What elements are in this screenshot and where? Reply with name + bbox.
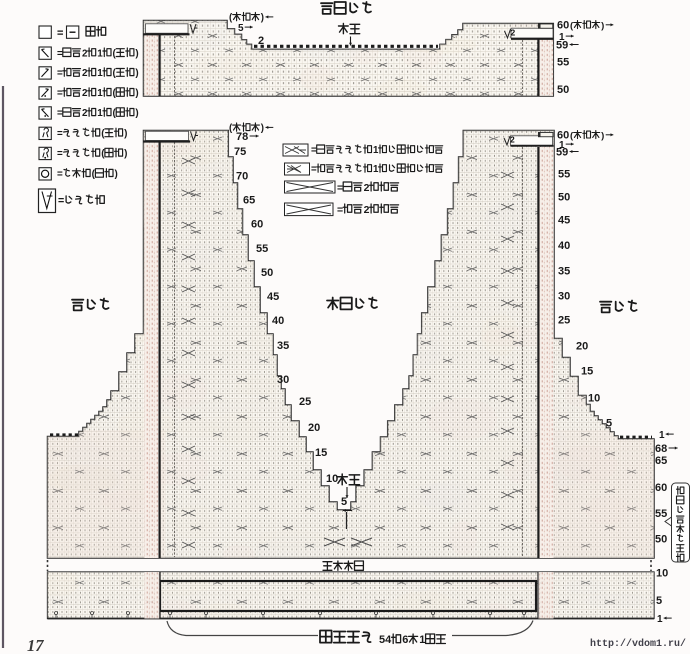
svg-text:=: =: [337, 182, 343, 194]
svg-text:): ): [124, 129, 127, 140]
svg-text:20: 20: [308, 422, 320, 434]
svg-text:1: 1: [97, 88, 103, 99]
svg-text:5: 5: [238, 23, 244, 34]
svg-text:2: 2: [364, 182, 370, 194]
svg-text:50: 50: [261, 267, 273, 279]
svg-text:=: =: [57, 169, 63, 180]
svg-text:=: =: [311, 145, 317, 156]
svg-text:): ): [601, 130, 604, 141]
svg-text:5: 5: [341, 496, 347, 508]
svg-text:40: 40: [272, 315, 284, 327]
svg-text:60: 60: [251, 219, 263, 231]
svg-text:68: 68: [655, 443, 667, 455]
svg-text:2: 2: [82, 88, 88, 99]
svg-text:http://vdom1.ru/: http://vdom1.ru/: [590, 638, 686, 650]
svg-text:=: =: [57, 48, 63, 59]
svg-text:): ): [601, 20, 604, 31]
svg-text:1: 1: [419, 634, 425, 646]
svg-text:1: 1: [373, 145, 379, 156]
svg-text:1: 1: [97, 108, 103, 119]
svg-text:15: 15: [581, 366, 593, 378]
svg-text:55: 55: [655, 508, 667, 520]
svg-text:2: 2: [82, 108, 88, 119]
svg-text:17: 17: [27, 636, 44, 654]
svg-text:50: 50: [558, 192, 570, 204]
svg-text:2: 2: [511, 28, 516, 38]
svg-text:=: =: [58, 195, 64, 207]
svg-text:1: 1: [97, 68, 103, 79]
svg-text:25: 25: [299, 396, 311, 408]
svg-text:1: 1: [97, 48, 103, 59]
svg-text:45: 45: [267, 291, 279, 303]
svg-text:70: 70: [236, 171, 248, 183]
svg-text:10: 10: [588, 393, 600, 405]
svg-text:=: =: [311, 164, 317, 175]
svg-text:): ): [115, 169, 118, 180]
svg-text:35: 35: [558, 266, 570, 278]
svg-text:10: 10: [656, 568, 668, 580]
svg-text:): ): [261, 123, 264, 134]
svg-text:=: =: [57, 149, 63, 160]
svg-text:5: 5: [656, 595, 662, 607]
svg-text:=: =: [57, 108, 63, 119]
svg-text:78: 78: [236, 131, 248, 143]
svg-text:10: 10: [326, 473, 338, 485]
svg-text:2: 2: [82, 68, 88, 79]
svg-text:=: =: [57, 68, 63, 79]
svg-text:1: 1: [659, 430, 665, 441]
svg-text:): ): [135, 68, 138, 79]
svg-text:59: 59: [556, 40, 568, 52]
svg-text:50: 50: [655, 534, 667, 546]
svg-text:=: =: [57, 129, 63, 140]
svg-text:60: 60: [655, 482, 667, 494]
svg-text:15: 15: [315, 447, 327, 459]
svg-text:5: 5: [606, 418, 612, 430]
svg-text:=: =: [57, 28, 63, 40]
svg-text:55: 55: [256, 243, 268, 255]
svg-text:35: 35: [277, 340, 289, 352]
svg-text:): ): [135, 48, 138, 59]
svg-text:65: 65: [243, 195, 255, 207]
svg-text:): ): [135, 108, 138, 119]
svg-text:2: 2: [258, 35, 264, 47]
svg-text:75: 75: [234, 146, 246, 158]
svg-text:60: 60: [557, 20, 569, 32]
svg-text:65: 65: [655, 455, 667, 467]
svg-text:30: 30: [277, 374, 289, 386]
svg-text:40: 40: [558, 240, 570, 252]
svg-text:2: 2: [364, 204, 370, 216]
svg-text:1: 1: [657, 614, 663, 625]
svg-text:55: 55: [557, 57, 569, 69]
svg-text:): ): [124, 149, 127, 160]
svg-text:54: 54: [379, 634, 392, 646]
svg-text:45: 45: [558, 215, 570, 227]
svg-text:55: 55: [558, 169, 570, 181]
svg-text:): ): [135, 88, 138, 99]
svg-text:2: 2: [510, 135, 515, 145]
svg-text:50: 50: [557, 84, 569, 96]
svg-text:2: 2: [82, 48, 88, 59]
svg-text:25: 25: [558, 315, 570, 327]
svg-text:30: 30: [558, 291, 570, 303]
svg-text:20: 20: [576, 341, 588, 353]
svg-text:=: =: [337, 204, 343, 216]
svg-text:1: 1: [373, 164, 379, 175]
svg-text:): ): [261, 13, 264, 24]
svg-text:6: 6: [402, 634, 408, 646]
svg-text:=: =: [57, 88, 63, 99]
svg-text:59: 59: [556, 147, 568, 159]
